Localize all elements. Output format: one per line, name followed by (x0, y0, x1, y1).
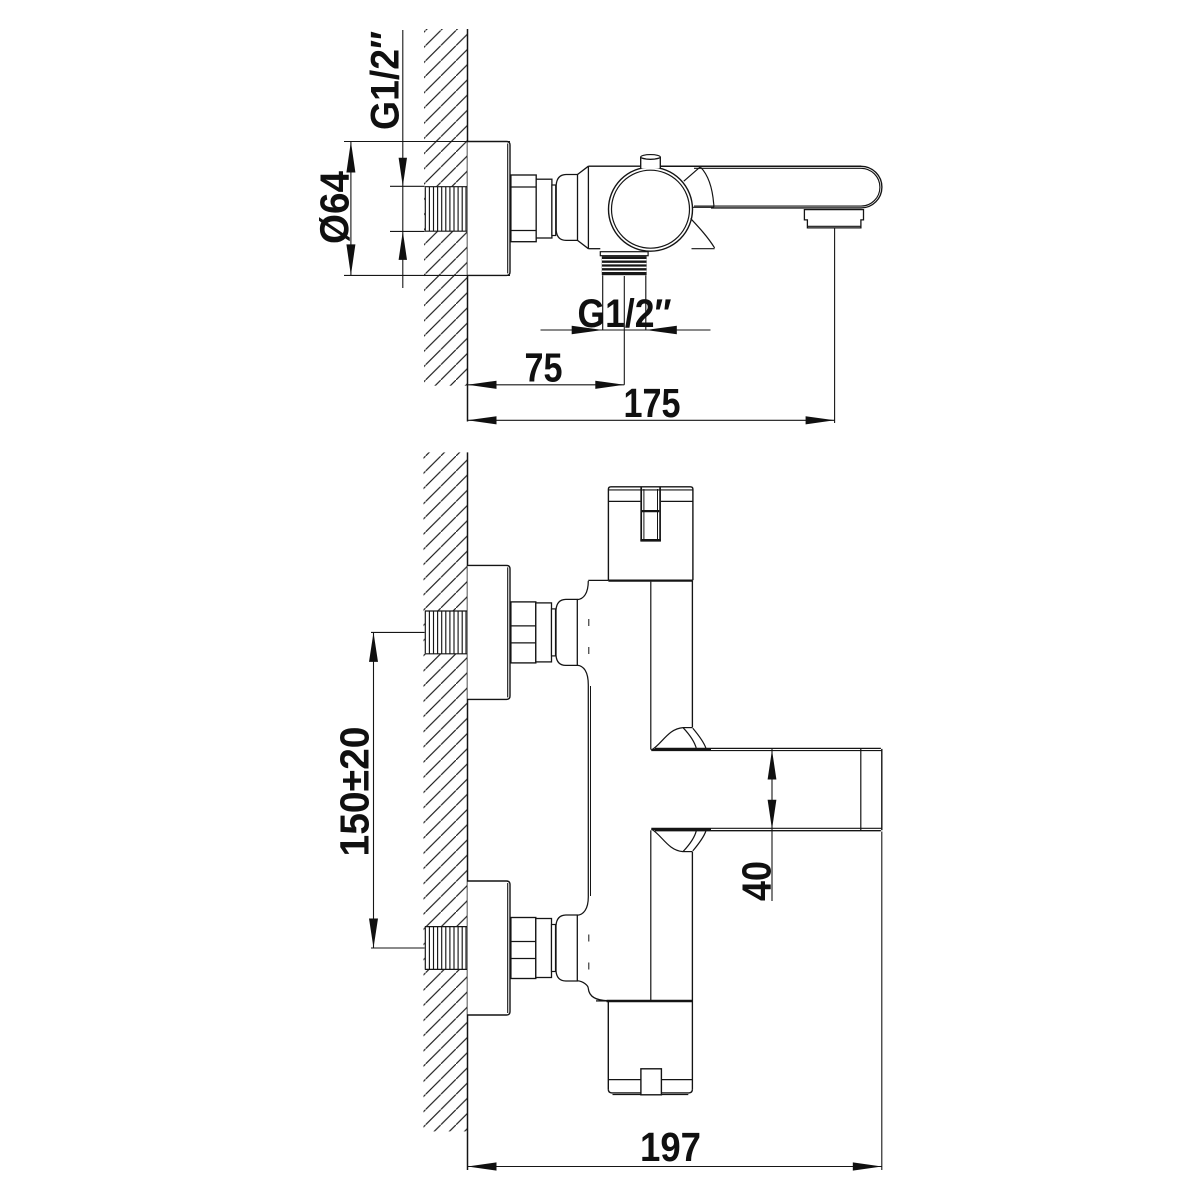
svg-text:75: 75 (525, 345, 563, 391)
svg-text:Ø64: Ø64 (312, 171, 358, 244)
svg-text:197: 197 (640, 1124, 701, 1170)
svg-text:G1/2″: G1/2″ (578, 292, 672, 336)
svg-text:150±20: 150±20 (332, 727, 378, 857)
svg-text:G1/2″: G1/2″ (364, 31, 408, 130)
svg-text:40: 40 (734, 861, 780, 901)
svg-text:175: 175 (624, 380, 681, 426)
